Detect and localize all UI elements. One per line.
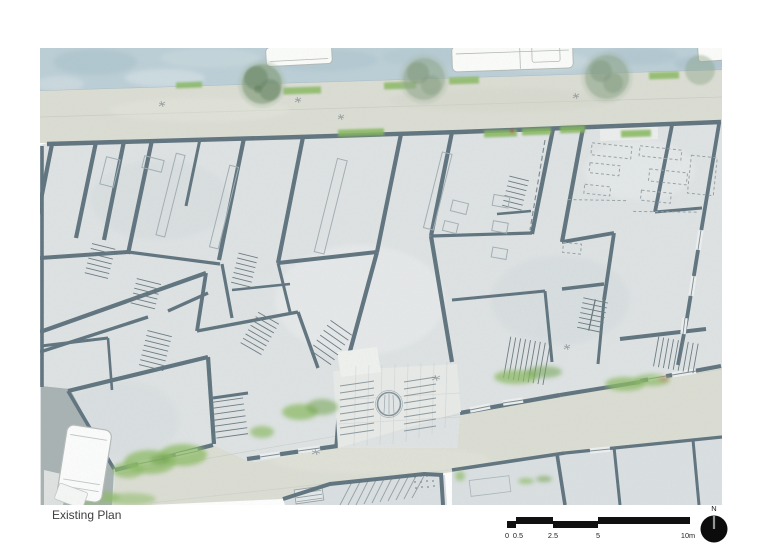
scale-tick-label: 5 [596, 531, 600, 540]
scale-tick-label: 2.5 [548, 531, 558, 540]
scale-tick-label: 0 [505, 531, 509, 540]
scale-end-label: 10m [681, 531, 695, 540]
existing-plan-drawing: Existing Plan 0 0.5 2.5 5 10m N [0, 0, 780, 555]
scale-bar: 0 0.5 2.5 5 10m [505, 517, 695, 540]
drawing-sheet: Existing Plan 0 0.5 2.5 5 10m N [0, 0, 780, 555]
north-label: N [711, 504, 716, 513]
paper-grain-texture [40, 48, 722, 505]
plan-title: Existing Plan [52, 508, 121, 522]
scale-tick-label: 0.5 [513, 531, 523, 540]
north-arrow-icon: N [701, 504, 728, 543]
